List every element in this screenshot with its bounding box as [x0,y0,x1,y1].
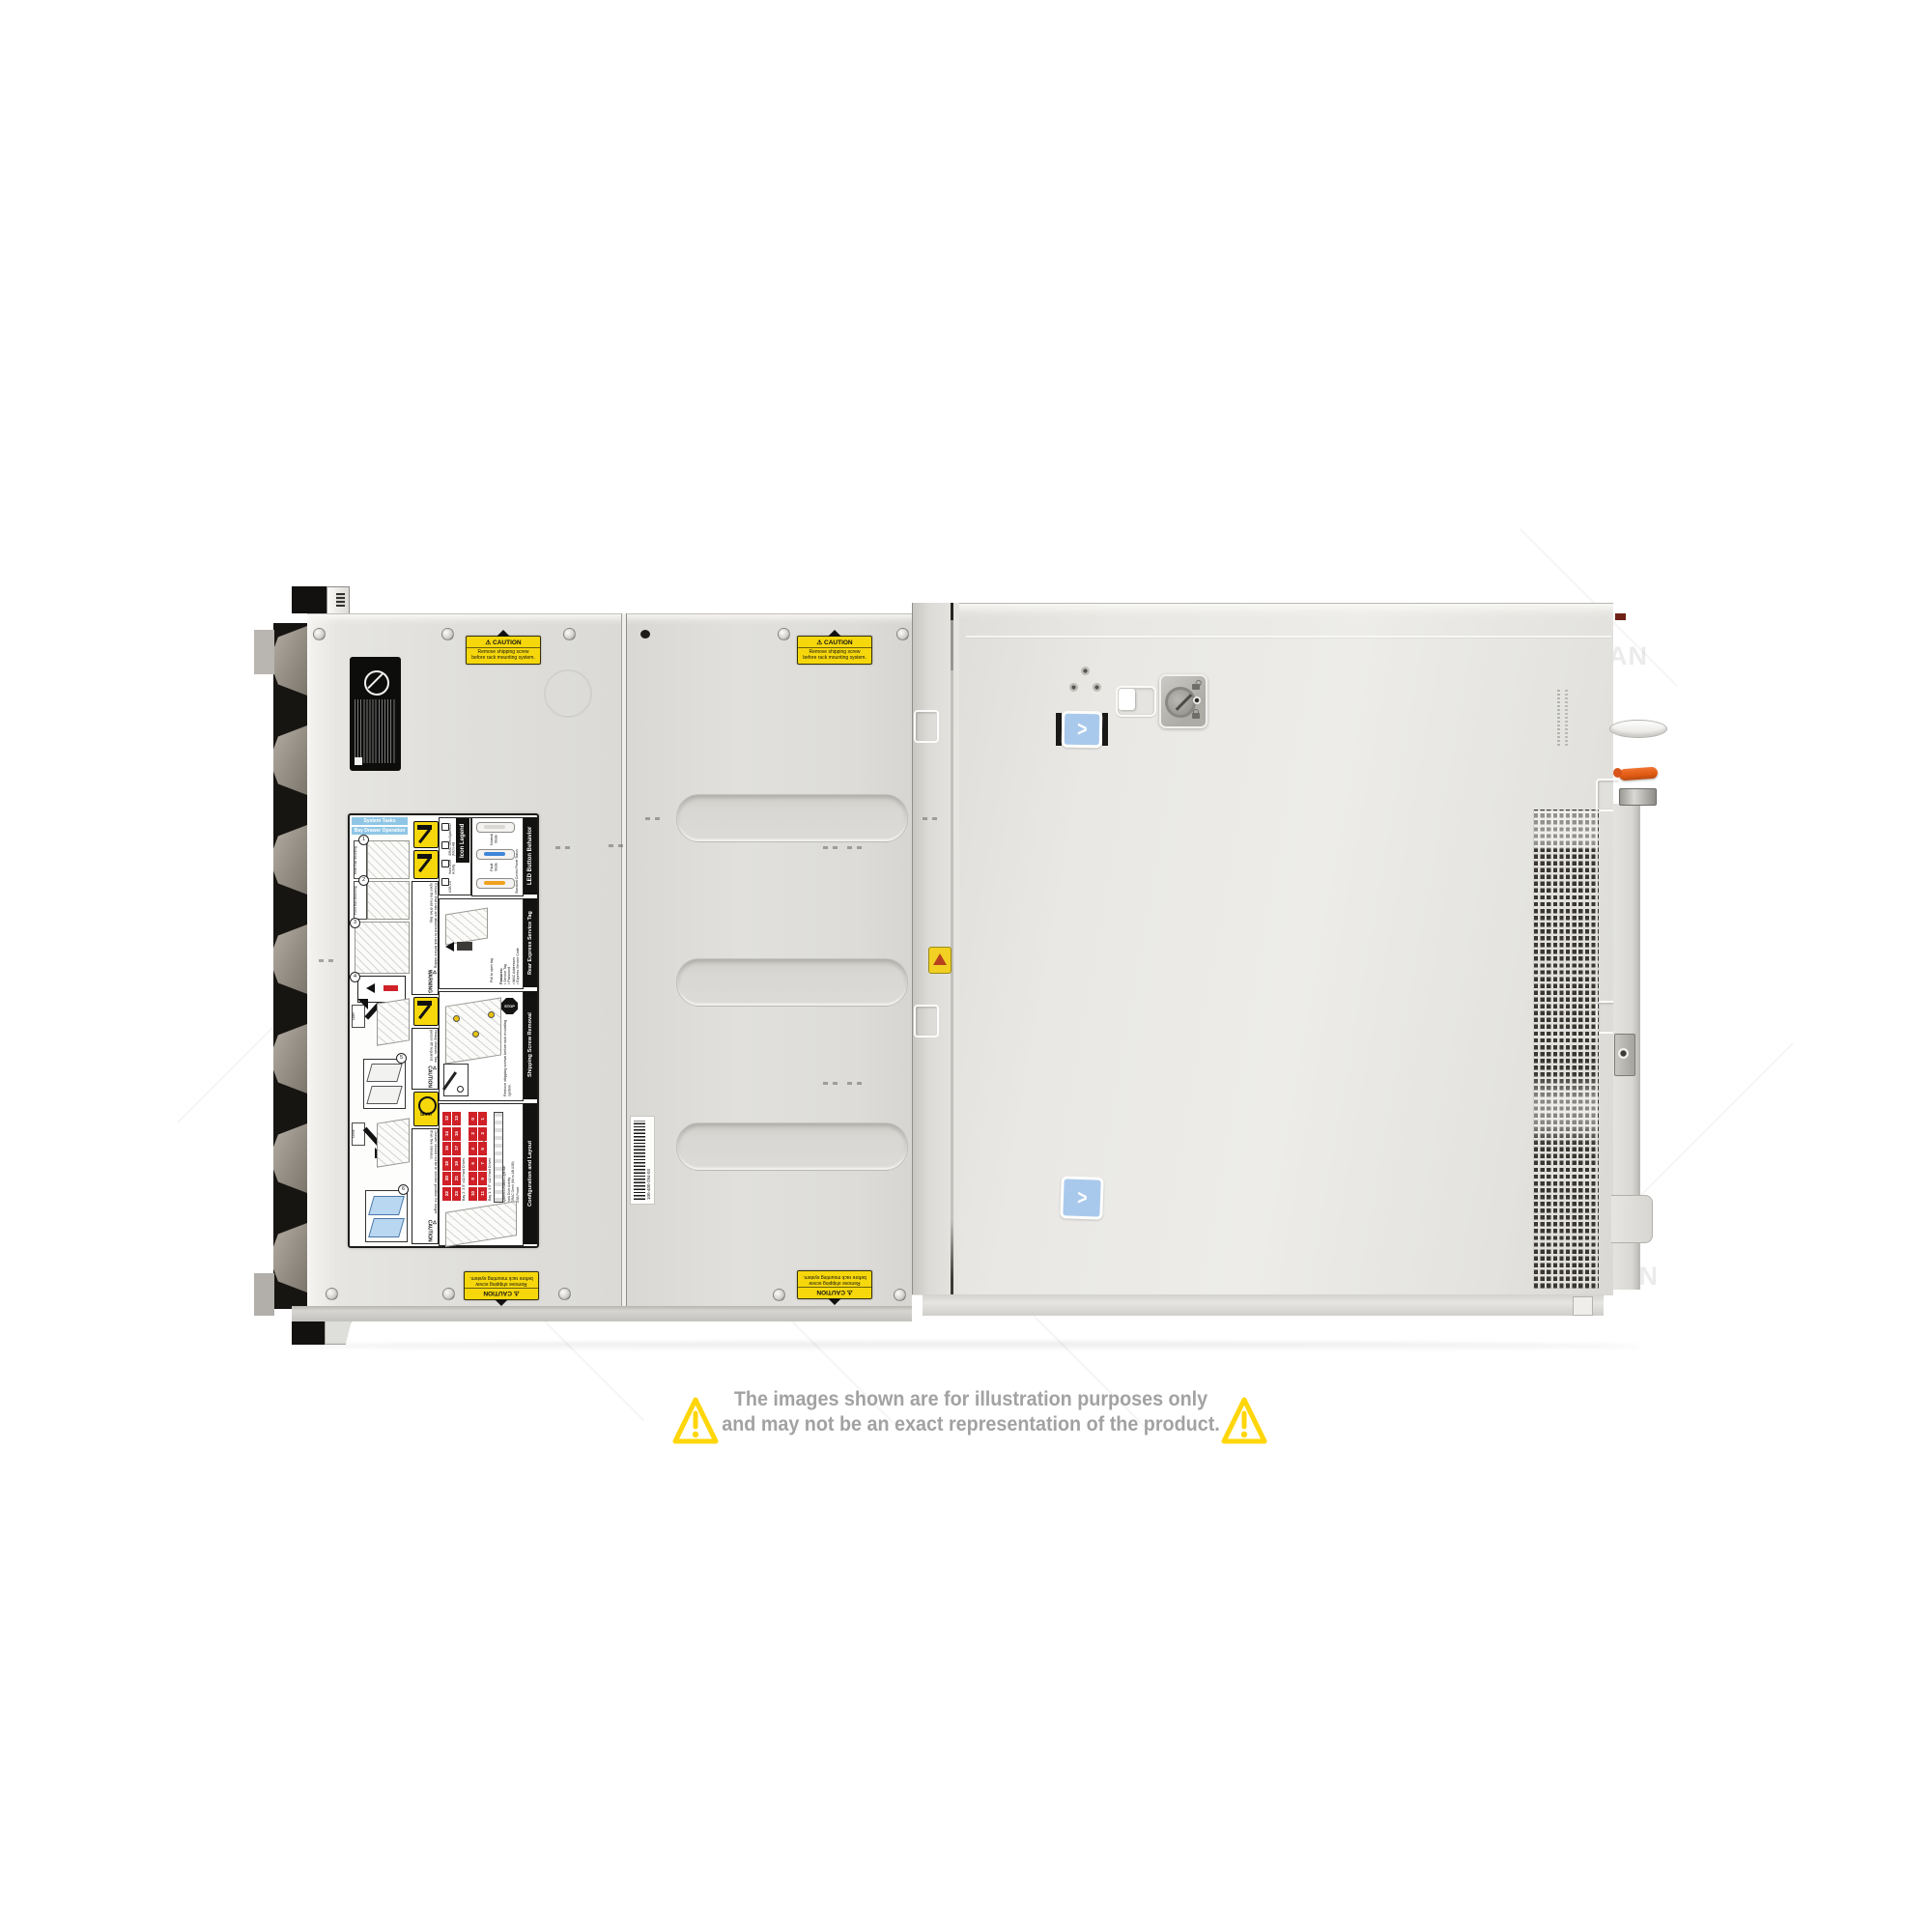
stop-icon: STOP [501,998,518,1014]
bay-cell: 19 [452,1157,461,1171]
rivet-pair [847,1082,862,1085]
mini-drawer-art [366,1064,402,1082]
bay-cell: 3 [478,1127,487,1141]
caution-title: ⚠ CAUTION [412,1065,438,1089]
latch-tab[interactable] [1119,689,1135,710]
blue-chevron-sticker-bottom: > [1060,1176,1104,1220]
bay-number: 13 [454,1116,459,1121]
caution-pointer-icon [828,630,841,637]
led-label-fault: Fault State [490,861,498,874]
config-header: Configuration and Layout [524,1103,537,1244]
bay2-grid: 121314151617181920212223 [442,1112,461,1201]
service-instruction-label: System Tasks Bay Drawer Operation Rear R… [348,813,539,1248]
config-side-labels: System ID/Status Light BarHard Drive Act… [503,1110,521,1203]
icon-legend-item: USB 2.0 [440,874,455,893]
screw-dot [1069,683,1078,692]
legend-item-label: System ID [449,819,453,838]
service-tag-features: Features:• Service Tag• Password• MAC Ad… [499,903,521,984]
icon-legend-item: Hard Drive Activity [440,856,455,874]
release-ring-handle[interactable] [1609,720,1667,738]
screw-icon [773,1289,785,1301]
caution-drawer-block: ⚠ CAUTION Drawer should not be in servic… [412,1128,439,1244]
caution-line1: Remove shipping screw [475,1281,526,1287]
caution-sticker-bottom-mid: ⚠ CAUTION Remove shipping screwbefore ra… [797,1270,872,1299]
step-art-front-rail [367,881,410,920]
stamped-logo-mark [544,669,592,718]
arrow-icon [366,983,375,993]
clock-5min-icon: 5min [413,1092,439,1126]
caution-title: CAUTION [824,639,853,646]
bay-number: 11 [480,1191,485,1196]
bay-cell: 22 [442,1187,451,1201]
rivet-pair [923,817,937,820]
bay-number: 12 [444,1116,449,1121]
shipping-screw-dot [472,1031,479,1037]
caution-warn-icon: ⚠ [847,1289,853,1295]
screwdriver-icon [442,1071,457,1091]
screw-icon [326,1288,338,1300]
service-tag-note: Pull to open tag [490,938,494,982]
rail-latch-bottom[interactable] [1614,1034,1635,1076]
bezel-tooth [273,725,307,795]
barcode-icon [634,1121,645,1200]
bay-cell: 12 [442,1112,451,1125]
front-bezel-strip [273,623,307,1309]
led-bar-amber [476,878,515,889]
led-subtitle: Standard Control Panel Status [516,820,520,894]
bay-number: 18 [444,1161,449,1166]
screwdriver-box [443,1064,469,1096]
chevron-right-icon: > [1077,719,1088,740]
grip-recess [676,958,908,1007]
bay-cell: 20 [442,1172,451,1185]
screw-hole-dark [640,630,650,639]
caution-title: CAUTION [493,639,522,646]
chevron-slot [1102,713,1108,746]
padlock-closed-icon [1192,713,1200,719]
bay-number: 8 [470,1178,475,1180]
keylock-plate[interactable] [1159,674,1207,728]
bay-number: 23 [454,1191,459,1196]
feature-item: • Express Service Code [516,903,520,984]
step-number: 2 [358,875,369,886]
caution-warn-icon: ⚠ [514,1290,520,1296]
lid-hook-cutout [914,1005,939,1037]
step-art-chassis [355,922,410,974]
bay-cell: 8 [469,1172,477,1185]
orange-lever-pin [1613,768,1622,778]
bay-cell: 5 [478,1142,487,1155]
bay-number: 14 [444,1131,449,1136]
screw-icon [563,628,576,640]
mini-drawer-art [366,1086,402,1104]
lock-indicator-dot [1193,696,1201,704]
caution-sticker-top-left: ⚠ CAUTION Remove shipping screwbefore ra… [466,636,541,665]
screw-icon [442,1288,455,1300]
service-tag-pull [457,942,472,951]
caution-body: Heavy chassis. Two person lift required. [412,1029,438,1065]
bay-cell: 17 [452,1142,461,1155]
caution-title: CAUTION [483,1290,512,1296]
bay-cell: 0 [469,1112,477,1125]
step-caption-front-rail: Front Rail Mounting [354,881,367,920]
rivet-pair [823,1082,838,1085]
skirt-notch [1573,1296,1593,1316]
step-number: 3 [350,918,360,928]
led-behavior-box: Normal State Fault State Standard Contro… [471,817,524,896]
screw-icon [558,1288,571,1300]
barcode-text: 100-400-294-03 [646,1121,651,1200]
bezel-tooth [273,1024,307,1094]
screw-icon [896,628,909,640]
clock-label: 5min [414,1112,438,1118]
led-behavior-header: LED Button Behavior [524,817,537,895]
warning-triangle-icon [671,1395,720,1449]
bay1-label: Bay 1: 3.5" x12 Hard Drives [488,1112,492,1201]
bay-number: 2 [470,1132,475,1135]
bay-cell: 23 [452,1187,461,1201]
barcode-label: 100-400-294-03 [630,1116,655,1205]
shipping-header: Shipping Screw Removal [524,991,537,1099]
bay-number: 15 [454,1131,459,1136]
caution-body: Drawer should not be in service position… [412,1129,438,1219]
bay-number: 20 [444,1176,449,1180]
bottom-flange [292,1306,912,1321]
stamp-lines [1565,688,1568,746]
mini-drawer-art-blue [368,1196,405,1215]
corner-block-bottom-left [292,1319,327,1345]
bay-number: 4 [470,1148,475,1151]
icon-legend-item: iDRAC Direct (Micro-AB USB) [440,838,455,856]
bay-cell: 1 [478,1112,487,1125]
bay-cell: 10 [469,1187,477,1201]
bay-number: 9 [480,1178,485,1180]
caution-line2: before rack mounting system. [803,1274,867,1280]
caution-line1: Remove shipping screw [809,1280,860,1286]
led-bar-blue [476,849,515,860]
warning-body: Ensure that rails are attached to rack b… [412,882,438,969]
right-lid [912,603,1613,1295]
shipping-box: STOP Remove shipping screws before rack … [439,991,524,1101]
corner-piece-top-stripes [336,593,345,607]
right-lid-crease [966,636,1611,639]
bay-number: 16 [444,1146,449,1151]
orange-release-lever[interactable] [1619,767,1659,781]
cover-latch-slider[interactable] [1116,686,1156,717]
bay-cell: 15 [452,1127,461,1141]
config-box: Front View 121314151617181920212223 Bay … [439,1103,524,1246]
icon-legend-items: System IDiDRAC Direct (Micro-AB USB)Hard… [440,819,455,893]
rivet-pair [609,844,623,847]
disclaimer-text: The images shown are for illustration pu… [717,1387,1225,1437]
warning-title: ⚠ WARNING [412,969,438,994]
side-tab [1611,1195,1653,1243]
prohibition-icon [364,670,389,696]
keyway-slot [1176,694,1193,711]
caution-sticker-top-mid: ⚠ CAUTION Remove shipping screwbefore ra… [797,636,872,665]
caution-title: ⚠ CAUTION [412,1219,438,1243]
warning-block: ⚠ WARNING Ensure that rails are attached… [412,881,439,995]
right-lid-skirt [923,1294,1604,1316]
step-caption-rear-rail: Rear Rail Mounting [354,840,367,879]
bay-cell: 14 [442,1127,451,1141]
bay-cell: 2 [469,1127,477,1141]
bezel-nub-top [254,630,274,674]
rivet-pair [319,959,333,962]
disclaimer-line2: and may not be an exact representation o… [717,1412,1225,1437]
caution-pointer-icon [495,1299,508,1306]
seam-warning-sticker [928,947,952,974]
bezel-tooth [273,1123,307,1193]
red-button-bar [384,985,398,991]
caution-pointer-icon [497,630,510,637]
bay-number: 0 [470,1118,475,1121]
bezel-nub-bottom [254,1273,274,1316]
grip-recess [676,794,908,842]
shipping-body: Remove shipping screws before rack mount… [503,1019,519,1096]
bay-number: 19 [454,1161,459,1166]
red-connector [1615,613,1626,620]
bay-cell: 13 [452,1112,461,1125]
icon-legend-header: Icon Legend [456,818,469,863]
bay2-label: Bay 2: 3.5" x12 Hard Drives [462,1112,466,1201]
step-art-drawer-open [377,998,410,1045]
shipping-screw-dot [453,1015,460,1022]
screw-icon [313,628,326,640]
hand-crush-icon [413,997,439,1026]
config-chassis-art [445,1201,517,1247]
arrow-icon [445,942,454,952]
rivet-pair [847,846,862,849]
caution-warn-icon: ⚠ [485,639,491,646]
screw-dot [1081,667,1090,675]
caution-pointer-icon [828,1298,841,1305]
bay-number: 10 [470,1191,475,1196]
service-tag-box: Pull to open tag Features:• Service Tag•… [439,898,524,989]
icon-legend-box: System IDiDRAC Direct (Micro-AB USB)Hard… [439,817,471,895]
led-label-normal: Normal State [490,833,498,846]
bezel-tooth [273,924,307,994]
rivet-pair [555,846,570,849]
caution-line2: before rack mounting system. [469,1275,533,1281]
bay-number: 3 [480,1132,485,1135]
watermark-line [1635,1042,1794,1201]
stamp-lines [1557,688,1560,746]
bay-number: 17 [454,1146,459,1151]
hand-crush-icon [413,850,439,879]
caution-line2: before rack mounting system. [471,655,535,661]
bay1-grid: 01234567891011 [469,1112,487,1201]
chevron-right-icon: > [1076,1187,1087,1208]
lid-hook-cutout [914,710,939,743]
screw-icon [441,628,454,640]
padlock-open-icon [1192,684,1200,690]
caution-lift-block: ⚠ CAUTION Heavy chassis. Two person lift… [412,1028,439,1090]
mini-drawer-art-blue [368,1218,405,1237]
regulatory-label [350,657,401,771]
step-number: 1 [358,835,369,845]
disclaimer-line1: The images shown are for illustration pu… [717,1387,1225,1412]
rivet-pair [645,817,660,820]
shipping-screw-dot [488,1011,495,1018]
bay-number: 6 [470,1162,475,1165]
drop-shadow [290,1342,1642,1350]
grip-recess [676,1122,908,1171]
rivet-pair [823,846,838,849]
legend-item-label: USB 2.0 [449,874,453,893]
step-number: 6 [398,1184,409,1195]
rail-latch-top[interactable] [1619,788,1657,806]
service-tag-header: Rear Express Service Tag [524,898,537,987]
step-inset-box [365,1190,408,1242]
feature-item: • Password [507,903,511,984]
screw-dot [1093,683,1101,692]
step-caption-close: Close [352,1122,365,1146]
bay-number: 22 [444,1191,449,1196]
bay-cell: 9 [478,1172,487,1185]
bay-cell: 21 [452,1172,461,1185]
screw-icon [778,628,790,640]
screw-icon [894,1289,906,1301]
step-art-rear-rail [367,840,410,879]
caution-warn-icon: ⚠ [816,639,822,646]
caution-line2: before rack mounting system. [803,655,867,661]
blue-chevron-sticker-top: > [1062,711,1103,749]
config-side-label: USB Power [517,1110,522,1203]
caution-title: CAUTION [816,1289,845,1295]
product-photo-canvas: COMPANCOMPANCOMPANCOMPANCOMPANCOMPANCOMP… [0,0,1932,1932]
bezel-tooth [273,825,307,895]
service-tag-art [445,908,488,946]
icon-legend-item: System ID [440,819,455,838]
regulatory-microtext [355,699,396,763]
warning-triangle-icon [1220,1395,1268,1449]
screwdriver-tip [457,1086,464,1093]
bay-cell: 11 [478,1187,487,1201]
hand-crush-icon [413,821,439,848]
led-bar-normal [476,822,515,833]
regulatory-mark [355,757,362,765]
latch-screw-hole [1618,1048,1629,1059]
label-header-bay-drawer: Bay Drawer Operation [352,827,408,835]
bay-cell: 6 [469,1157,477,1171]
step-inset-box [363,1059,406,1109]
caution-sticker-bottom-left: ⚠ CAUTION Remove shipping screwbefore ra… [464,1271,539,1300]
bay-number: 1 [480,1118,485,1121]
corner-block-top-left [292,586,327,613]
bay-cell: 16 [442,1142,451,1155]
label-header-system-tasks: System Tasks [352,817,408,825]
step-number: 5 [396,1053,407,1064]
bay-number: 7 [480,1162,485,1165]
bay-number: 5 [480,1148,485,1151]
bezel-tooth [273,626,307,696]
step-number: 4 [350,972,360,982]
bay-cell: 7 [478,1157,487,1171]
step-art-drawer-close [377,1118,410,1167]
bay-cell: 4 [469,1142,477,1155]
bay-cell: 18 [442,1157,451,1171]
bezel-tooth [273,1223,307,1293]
arrow-head-icon [357,999,368,1009]
vent-perforation-grid [1533,810,1599,1289]
bay-number: 21 [454,1176,459,1180]
